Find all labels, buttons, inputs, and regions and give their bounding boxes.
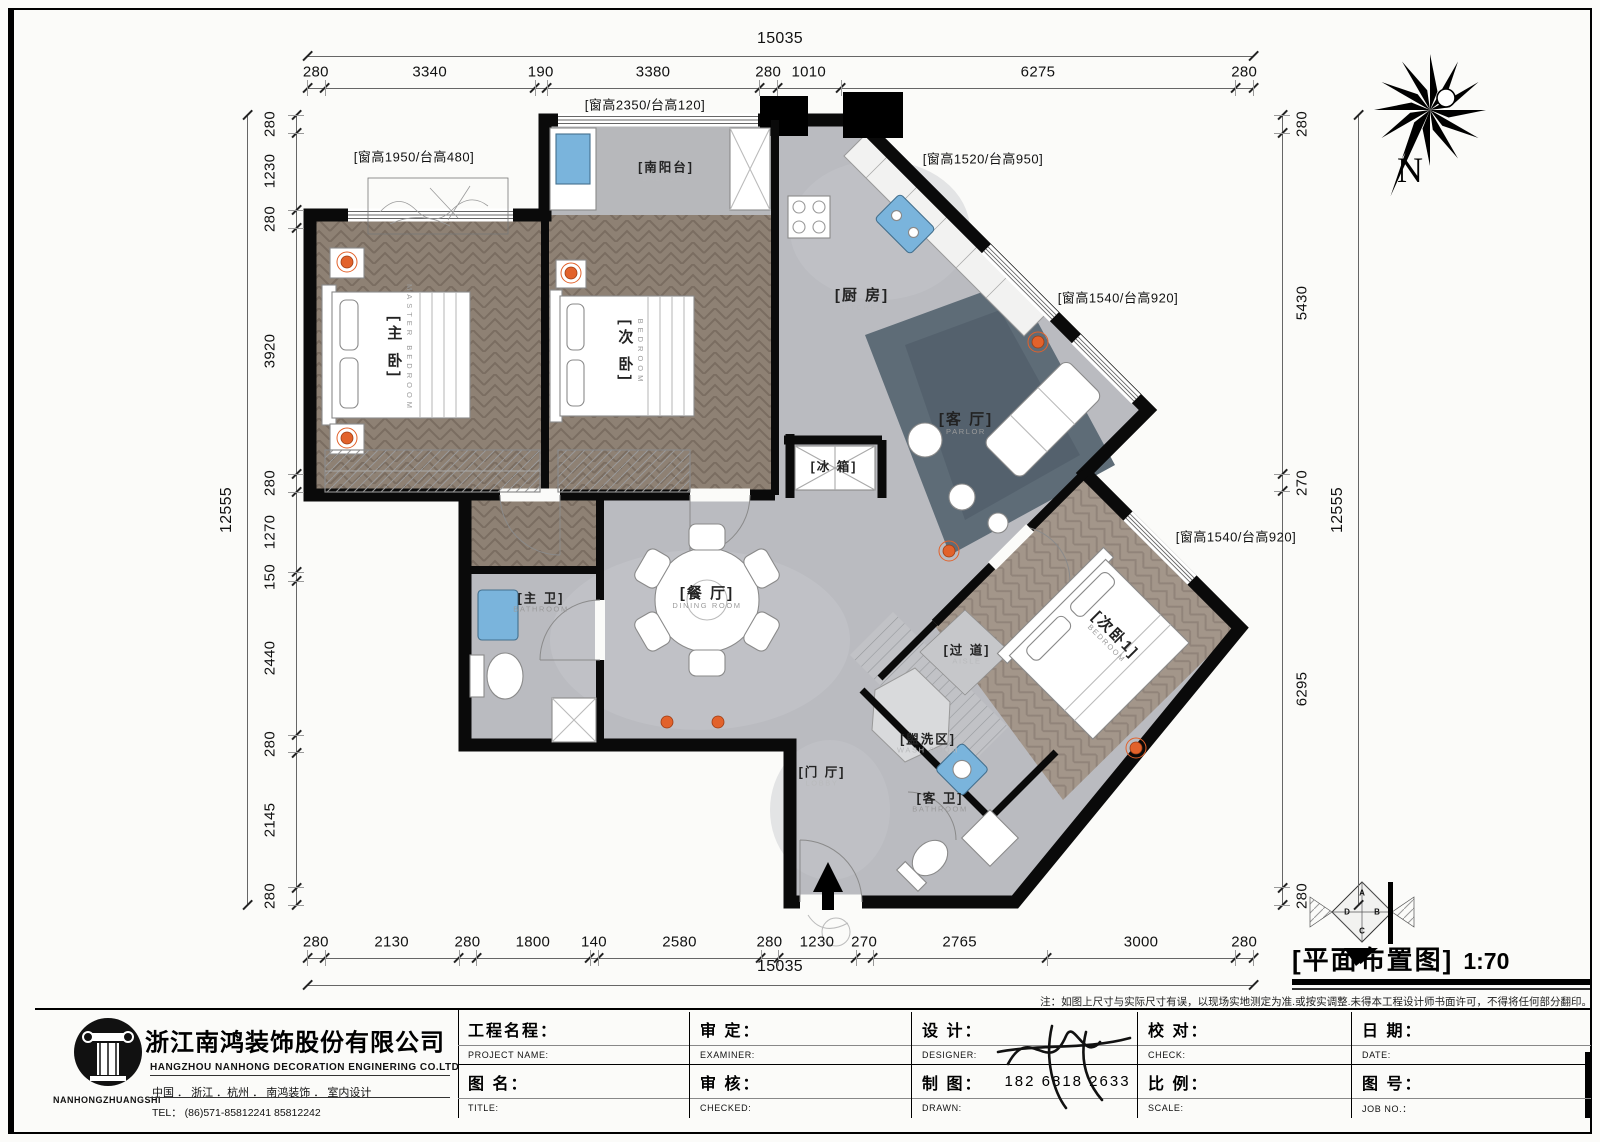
dimension-value: 280 (262, 206, 279, 232)
dimension-value: 2580 (662, 934, 697, 951)
dimension-value: 1010 (791, 64, 826, 81)
dimension-line (307, 88, 1253, 89)
window-height-note: [窗高2350/台高120] (585, 95, 705, 114)
cell-label-cn: 图 名： (458, 1065, 689, 1099)
room-name-en: DINING ROOM (672, 602, 741, 611)
cell-label-en: PROJECT NAME: (458, 1046, 689, 1064)
title-block-cell-drawing-name: 图 名：TITLE: (458, 1065, 690, 1118)
room-name-cn: [客 卫] (912, 792, 968, 806)
dimension-extension (288, 735, 304, 736)
room-name-en: WASH ROOM (897, 747, 959, 756)
dimension-value: 1800 (516, 934, 551, 951)
dimension-value: 1270 (262, 515, 279, 550)
dimension-value: 280 (303, 64, 329, 81)
company-divider (150, 1097, 450, 1098)
dimension-extension (325, 950, 326, 966)
cell-label-en: EXAMINER: (690, 1046, 911, 1064)
title-block-cell-project-name: 工程名程：PROJECT NAME: (458, 1012, 690, 1065)
room-name-en: MASTER BEDROOM (404, 284, 413, 412)
dimension-value: 280 (1294, 883, 1311, 909)
dimension-value: 280 (303, 934, 329, 951)
dimension-value: 150 (262, 564, 279, 590)
dimension-extension (856, 950, 857, 966)
dimension-extension (288, 752, 304, 753)
title-block-cell-examiner: 审 定：EXAMINER: (690, 1012, 912, 1065)
dimension-value: 1230 (262, 154, 279, 189)
dimension-value: 3000 (1124, 934, 1159, 951)
cell-label-en: SCALE: (1138, 1099, 1351, 1117)
cell-label-cn: 审 定： (690, 1012, 911, 1046)
dimension-extension (759, 80, 760, 96)
dimension-value: 6295 (1294, 672, 1311, 707)
dimension-extension (325, 80, 326, 96)
drawing-scale: 1:70 (1463, 948, 1509, 975)
dimension-extension (1235, 950, 1236, 966)
dimension-value: 280 (1231, 64, 1257, 81)
dimension-value: 190 (528, 64, 554, 81)
room-name-cn: [次 卧] (616, 320, 633, 384)
dimension-extension (288, 228, 304, 229)
room-name-cn: [客 厅] (939, 411, 993, 428)
room-label-bedroom: [次 卧]BEDROOM (616, 319, 644, 386)
room-label-parlor: [客 厅]PARLOR (939, 411, 993, 437)
dimension-value: 3340 (412, 64, 447, 81)
room-name-cn: [主 卫] (513, 592, 569, 606)
room-name-en: KITCHEN (835, 304, 889, 313)
room-name-en: BATHROOM (513, 606, 569, 615)
room-label-fridge: [冰 箱] (811, 460, 858, 474)
room-label-lobby: [门 厅]LOBBY (799, 766, 846, 789)
dimension-total: 12555 (1329, 487, 1347, 533)
dimension-extension (476, 950, 477, 966)
title-block-cell-date: 日 期：DATE: (1352, 1012, 1592, 1065)
title-underline-thin (1292, 988, 1590, 990)
dimension-extension (288, 474, 304, 475)
window-height-note: [窗高1540/台高920] (1058, 288, 1178, 307)
room-label-kitchen: [厨 房]KITCHEN (835, 287, 889, 313)
dimension-extension (288, 115, 304, 116)
title-block-cell-checked: 审 核：CHECKED: (690, 1065, 912, 1118)
cell-label-en: CHECKED: (690, 1099, 911, 1117)
dimension-line (296, 115, 297, 905)
dimension-extension (841, 80, 842, 96)
room-name-cn: [厨 房] (835, 287, 889, 304)
dimension-value: 3380 (636, 64, 671, 81)
dimension-value: 1230 (800, 934, 835, 951)
dimension-value: 280 (262, 470, 279, 496)
cell-label-cn: 日 期： (1352, 1012, 1591, 1046)
room-name-cn: [餐 厅] (672, 585, 741, 602)
company-logo (70, 1016, 146, 1092)
dimension-extension (1253, 950, 1254, 966)
room-label-wash-room: [盥洗区]WASH ROOM (897, 733, 959, 756)
dimension-total: 12555 (218, 487, 236, 533)
dimension-extension (1047, 950, 1048, 966)
room-name-cn: [主 卧] (385, 316, 402, 380)
dimension-value: 2765 (942, 934, 977, 951)
title-block-cell-check: 校 对：CHECK: (1138, 1012, 1352, 1065)
floor-plan-sheet: 2803340190338028010106275280150352802130… (0, 0, 1600, 1142)
dimension-extension (288, 581, 304, 582)
dimension-extension (307, 80, 308, 96)
title-underline (1292, 979, 1590, 985)
disclaimer-note: 注：如图上尺寸与实际尺寸有误，以现场实地测定为准.或按实调整.未得本工程设计师书… (1040, 994, 1592, 1009)
dimension-extension (1274, 474, 1290, 475)
dimension-extension (777, 80, 778, 96)
dimension-extension (288, 492, 304, 493)
room-name-en: BALCONY (638, 175, 694, 184)
dimension-extension (288, 905, 304, 906)
window-height-note: [窗高1520/台高950] (923, 149, 1043, 168)
dimension-line-total (1358, 115, 1359, 905)
dimension-value: 280 (262, 111, 279, 137)
north-label: N (1397, 149, 1423, 191)
dimension-extension (1274, 115, 1290, 116)
room-name-en: AISLE (944, 658, 991, 667)
direction-letter: C (1359, 927, 1365, 936)
cell-label-en: DATE: (1352, 1046, 1591, 1064)
dimension-value: 6275 (1021, 64, 1056, 81)
room-label-master-bathroom: [主 卫]BATHROOM (513, 592, 569, 615)
dimension-total: 15035 (757, 958, 803, 976)
dimension-value: 3920 (262, 334, 279, 369)
dimension-line-total (307, 985, 1253, 986)
dimension-extension (598, 950, 599, 966)
direction-letter: B (1374, 908, 1380, 917)
room-name-en: PARLOR (939, 428, 993, 437)
room-label-aisle: [过 道]AISLE (944, 644, 991, 667)
dimension-extension (307, 950, 308, 966)
dimension-extension (1274, 905, 1290, 906)
dimension-extension (547, 80, 548, 96)
direction-letter: D (1344, 908, 1350, 917)
dimension-value: 2130 (374, 934, 409, 951)
cell-label-en: CHECK: (1138, 1046, 1351, 1064)
title-block-cell-job-no: 图 号：JOB NO.： (1352, 1065, 1592, 1118)
company-name-en: HANGZHOU NANHONG DECORATION ENGINERING C… (150, 1062, 459, 1073)
title-block-cell-scale: 比 例：SCALE: (1138, 1065, 1352, 1118)
cell-label-cn: 图 号： (1352, 1065, 1591, 1099)
dimension-value: 280 (262, 883, 279, 909)
dimension-value: 280 (454, 934, 480, 951)
cell-label-cn: 校 对： (1138, 1012, 1351, 1046)
cell-label-en: TITLE: (458, 1099, 689, 1117)
dimension-value: 2440 (262, 641, 279, 676)
dimension-value: 280 (262, 731, 279, 757)
dimension-extension (590, 950, 591, 966)
drawing-title: [平面布置图] 1:70 (1292, 940, 1592, 977)
dimension-total: 15035 (757, 30, 803, 48)
dimension-extension (459, 950, 460, 966)
dimension-line-total (247, 115, 248, 905)
room-label-balcony: [南阳台]BALCONY (638, 161, 694, 184)
room-name-cn: [盥洗区] (897, 733, 959, 747)
dimension-value: 280 (755, 64, 781, 81)
dimension-value: 2145 (262, 803, 279, 838)
company-logo-text: NANHONGZHUANGSHI (53, 1095, 161, 1105)
dimension-extension (1274, 491, 1290, 492)
dimension-extension (535, 80, 536, 96)
window-height-note: [窗高1950/台高480] (354, 147, 474, 166)
dimension-value: 270 (1294, 470, 1311, 496)
dimension-extension (288, 887, 304, 888)
room-name-cn: [门 厅] (799, 766, 846, 780)
dimension-extension (288, 133, 304, 134)
room-name-cn: [冰 箱] (811, 460, 858, 474)
dimension-value: 280 (1294, 111, 1311, 137)
dimension-extension (1235, 80, 1236, 96)
cell-label-en: JOB NO.： (1352, 1099, 1591, 1117)
room-label-dining-room: [餐 厅]DINING ROOM (672, 585, 741, 611)
company-tel: TEL： (86)571-85812241 85812242 (152, 1105, 321, 1120)
dimension-value: 280 (756, 934, 782, 951)
direction-letter: A (1359, 889, 1365, 898)
dimension-extension (288, 572, 304, 573)
dimension-extension (873, 950, 874, 966)
dimension-extension (1274, 887, 1290, 888)
dimension-value: 140 (581, 934, 607, 951)
window-height-note: [窗高1540/台高920] (1176, 527, 1296, 546)
dimension-extension (1253, 80, 1254, 96)
dimension-extension (1274, 133, 1290, 134)
cell-label-cn: 工程名程： (458, 1012, 689, 1046)
drawing-title-text: [平面布置图] (1292, 940, 1453, 977)
designer-signature (990, 1012, 1160, 1112)
dimension-value: 270 (851, 934, 877, 951)
room-name-cn: [南阳台] (638, 161, 694, 175)
dimension-extension (288, 210, 304, 211)
cell-label-cn: 比 例： (1138, 1065, 1351, 1099)
north-compass-icon (1368, 28, 1508, 198)
room-name-en: BEDROOM (635, 319, 644, 386)
room-label-guest-bathroom: [客 卫]BATHROOM (912, 792, 968, 815)
cell-label-cn: 审 核： (690, 1065, 911, 1099)
dimension-line-total (307, 56, 1253, 57)
company-divider (150, 1075, 450, 1076)
room-name-cn: [过 道] (944, 644, 991, 658)
dimension-line (1282, 115, 1283, 905)
room-name-en: LOBBY (799, 780, 846, 789)
company-name-cn: 浙江南鸿装饰股份有限公司 (145, 1023, 445, 1058)
room-label-master-bedroom: [主 卧]MASTER BEDROOM (385, 284, 413, 412)
dimension-value: 5430 (1294, 286, 1311, 321)
room-name-en: BATHROOM (912, 806, 968, 815)
dimension-value: 280 (1231, 934, 1257, 951)
